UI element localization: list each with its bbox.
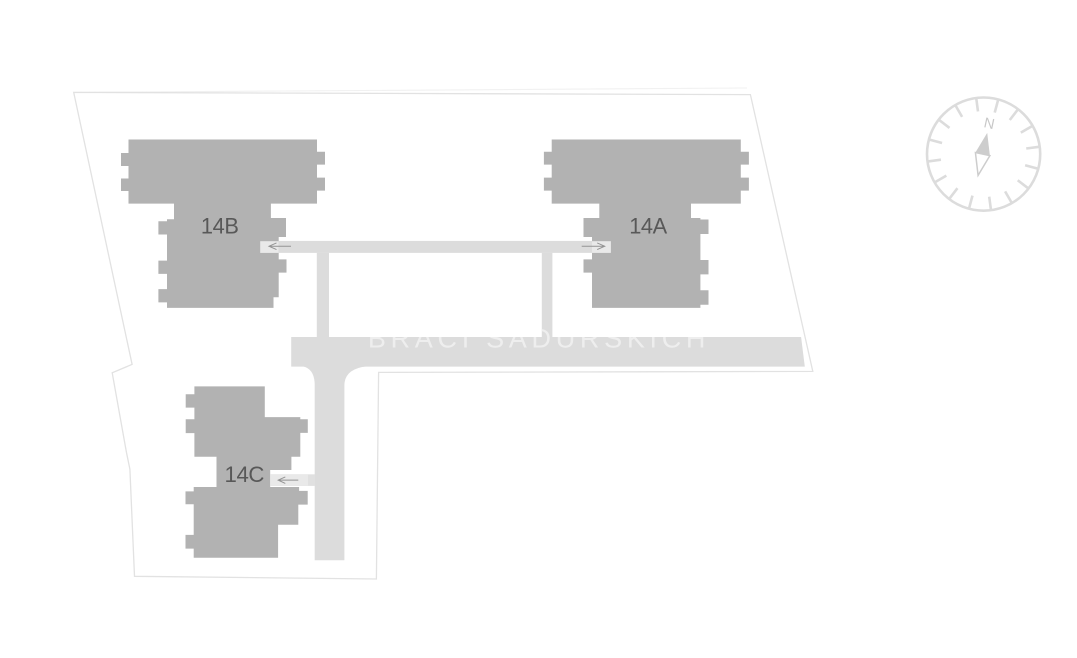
svg-text:N: N <box>982 115 996 133</box>
svg-text:14C: 14C <box>225 462 265 487</box>
svg-text:14A: 14A <box>629 213 667 238</box>
svg-text:BRACI SADURSKICH: BRACI SADURSKICH <box>368 324 710 354</box>
svg-text:14B: 14B <box>201 213 239 238</box>
